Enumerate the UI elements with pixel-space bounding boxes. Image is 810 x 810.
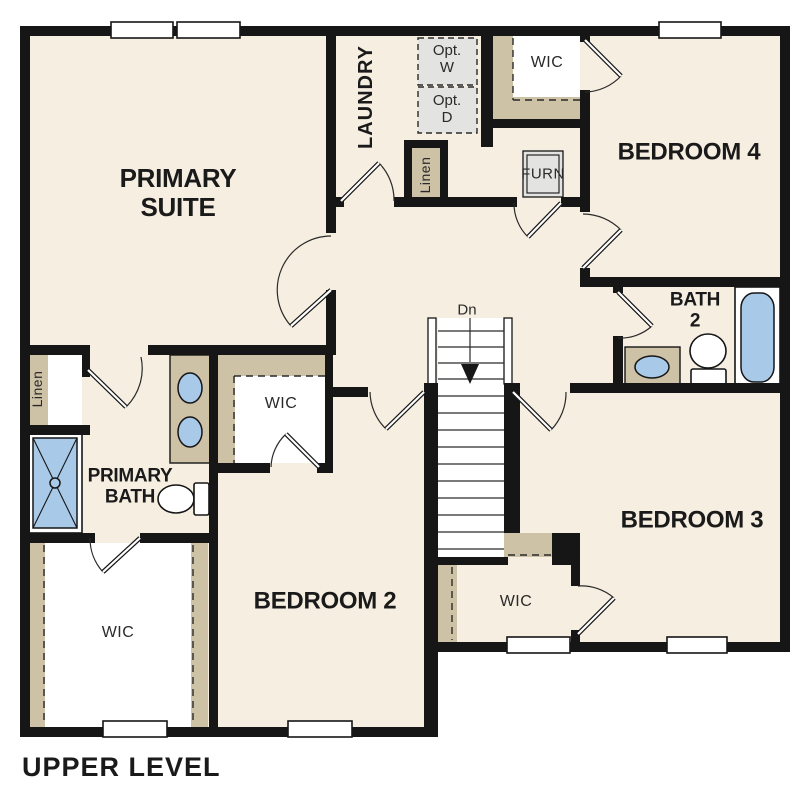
sink-icon [178,373,202,403]
sink-icon [635,356,669,378]
window-icon [667,637,727,653]
label-linen-hall: Linen [418,157,434,194]
room-label-wic-middle: WIC [265,395,298,413]
room-label-wic-bottom-left: WIC [102,624,135,642]
room-label-bedroom2: BEDROOM 2 [254,589,397,616]
room-label-primary-suite: PRIMARY SUITE [88,164,268,222]
window-icon [111,22,173,38]
window-icon [659,22,721,38]
bath2-tub [735,287,780,388]
staircase [428,318,512,557]
shower-drain-icon [50,478,60,488]
plan-title: UPPER LEVEL [22,752,221,783]
room-label-bath2: BATH 2 [670,290,720,333]
floor-plan-drawing [0,0,810,810]
window-icon [288,721,352,737]
room-label-wic-top: WIC [531,54,564,72]
room-label-wic-bottom-right: WIC [500,593,533,611]
room-label-bedroom4: BEDROOM 4 [618,140,761,167]
room-label-primary-bath: PRIMARY BATH [74,466,186,509]
sink-icon [178,417,202,447]
label-linen-bath: Linen [30,371,46,408]
window-icon [177,22,240,38]
bath2-vanity [625,347,680,387]
floor-plan: PRIMARY SUITE LAUNDRY Opt. W Opt. D WIC … [0,0,810,810]
label-opt-dryer: Opt. D [433,93,461,127]
label-furnace: FURN [521,167,565,184]
window-icon [103,721,167,737]
room-label-bedroom3: BEDROOM 3 [621,508,764,535]
window-icon [507,637,570,653]
bath2-toilet [690,334,726,387]
label-opt-washer: Opt. W [433,43,461,77]
label-stairs-down: Dn [457,303,476,320]
room-label-laundry: LAUNDRY [355,45,377,149]
primary-bath-vanity [170,355,210,463]
